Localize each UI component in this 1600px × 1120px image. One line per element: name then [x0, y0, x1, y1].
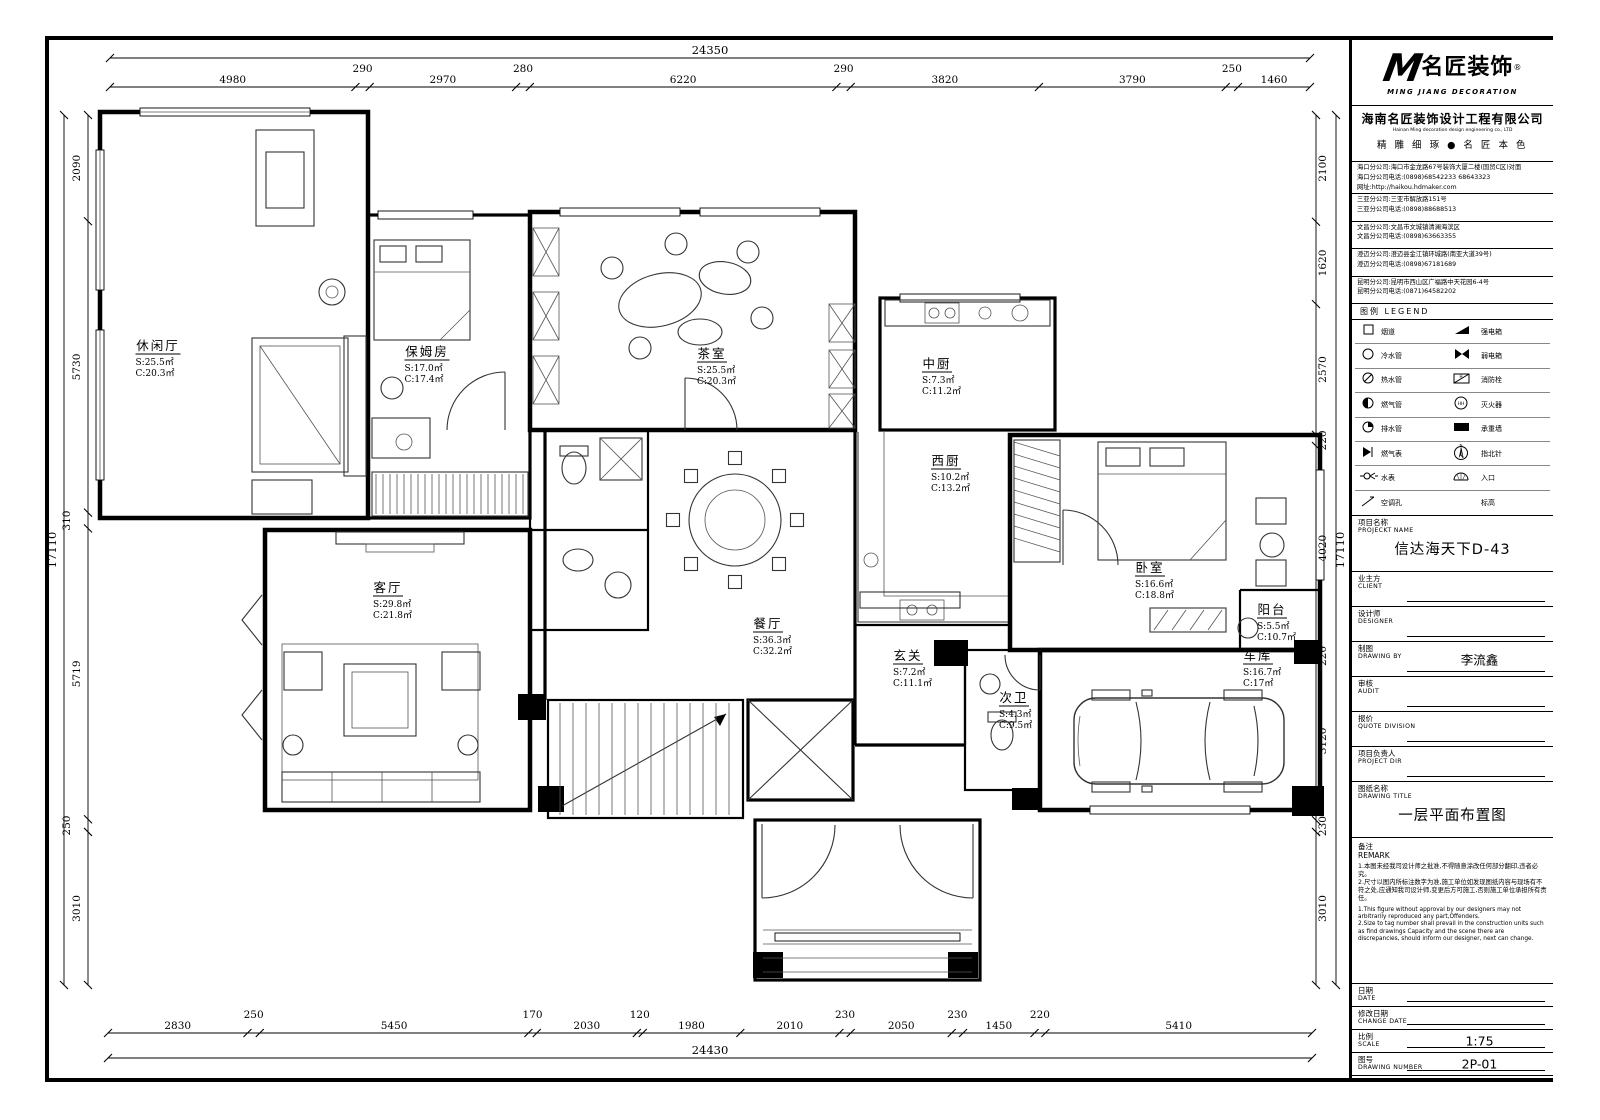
titleblock-field: 图纸名称DRAWING TITLE一层平面布置图 [1352, 782, 1553, 838]
dim-label: 2090 [71, 155, 83, 182]
field-rule [1407, 1070, 1545, 1071]
dim-label: 2010 [776, 1020, 803, 1032]
dim-label: 1980 [678, 1020, 705, 1032]
remark-line: 2.Size to tag number shall prevail in th… [1358, 921, 1547, 943]
legend-label: 水表 [1381, 473, 1441, 483]
dim-label: 4020 [1317, 535, 1329, 562]
titleblock-field: 设计师DESIGNER [1352, 607, 1553, 642]
field-label-cn: 设计师 [1358, 609, 1547, 618]
dim-label: 6220 [670, 74, 697, 86]
room-label: 茶室S:25.5㎡C:20.3㎡ [697, 346, 736, 387]
room-label: 卧室S:16.6㎡C:18.8㎡ [1135, 560, 1174, 601]
room-label: 次卫S:4.3㎡C:9.5㎡ [999, 690, 1032, 731]
room-name: 餐厅 [753, 616, 782, 631]
room-label: 车库S:16.7㎡C:17㎡ [1243, 648, 1281, 689]
dim-label: 17110 [1333, 532, 1347, 569]
room-area: S:7.3㎡ [922, 375, 955, 386]
field-rule [1407, 601, 1545, 602]
legend-row: 空调孔标高 [1355, 491, 1550, 515]
planter-hatch [1154, 610, 1168, 630]
room-area: S:17.0㎡ [405, 363, 443, 374]
field-rule [1407, 706, 1545, 707]
dim-label: 5410 [1165, 1020, 1192, 1032]
titleblock-field: 制图DRAWING BY李流鑫 [1352, 642, 1553, 677]
dim-label: 220 [1317, 646, 1329, 666]
closet-hatch [1014, 490, 1060, 504]
room-area: S:36.3㎡ [753, 635, 791, 646]
room-perimeter: C:17㎡ [1243, 678, 1273, 689]
room-area: S:25.5㎡ [136, 357, 174, 368]
room-perimeter: C:20.3㎡ [697, 376, 736, 387]
legend-row: 水表入口 [1355, 466, 1550, 490]
room-name: 西厨 [931, 453, 960, 468]
legend-table: 烟道强电箱冷水管弱电箱热水管H消防栓燃气管HH灭火器排水管承重墙燃气表N指北针水… [1352, 320, 1553, 516]
legend-label: 燃气表 [1381, 449, 1441, 459]
legend-header: 图例 LEGEND [1352, 304, 1553, 320]
field-label-cn: 项目负责人 [1358, 749, 1547, 758]
planter-hatch [1172, 610, 1186, 630]
company-name-en: Hainan Ming decoration design engineerin… [1352, 128, 1553, 133]
room-area: S:16.6㎡ [1135, 579, 1173, 590]
dim-label: 250 [244, 1009, 264, 1021]
remark-section: 备注 REMARK 1.本图未经我司设计师之批准,不得随意涂改任何部分翻印,违者… [1352, 838, 1553, 984]
room-perimeter: C:10.7㎡ [1257, 632, 1296, 643]
room-label: 客厅S:29.8㎡C:21.8㎡ [373, 580, 412, 621]
room-name: 茶室 [697, 346, 726, 361]
closet-hatch [1014, 514, 1060, 528]
legend-label: 消防栓 [1481, 375, 1549, 385]
drain-icon [1355, 419, 1381, 439]
legend-label: 指北针 [1481, 449, 1549, 459]
address-group: 文昌分公司:文昌市文城镇清澜海滨区文昌分公司电话:(0898)63663355 [1352, 222, 1553, 249]
titleblock-field: 修改日期CHANGE DATE [1352, 1007, 1553, 1030]
field-label-en: PROJECT DIR [1358, 758, 1547, 765]
svg-text:N: N [1459, 444, 1462, 448]
dim-label: 3790 [1119, 74, 1146, 86]
closet-hatch [1014, 466, 1060, 480]
gmeter-icon [1355, 444, 1381, 464]
room-area: S:5.5㎡ [1257, 621, 1290, 632]
room-perimeter: C:17.4㎡ [405, 374, 444, 385]
title-block: M 名匠装饰 ® MING JIANG DECORATION 海南名匠装饰设计工… [1349, 40, 1553, 1078]
titleblock-field: 比例SCALE1:75 [1352, 1030, 1553, 1053]
closet-hatch [1014, 454, 1060, 468]
company-logo: M 名匠装饰 ® MING JIANG DECORATION [1352, 40, 1553, 106]
address-line: 昆明分公司:昆明市西山区广福路中天花园6-4号 [1357, 278, 1548, 288]
room-label: 休闲厅S:25.5㎡C:20.3㎡ [136, 338, 181, 379]
room-label: 西厨S:10.2㎡C:13.2㎡ [931, 453, 970, 494]
dim-label: 4980 [219, 74, 246, 86]
power-icon [1441, 322, 1481, 342]
remark-cn-lines: 1.本图未经我司设计师之批准,不得随意涂改任何部分翻印,违者必究。2.尺寸以图内… [1358, 863, 1547, 904]
wmeter-icon [1355, 468, 1381, 488]
room-name: 客厅 [373, 580, 402, 595]
legend-title-cn: 图例 [1360, 307, 1380, 316]
room-label: 中厨S:7.3㎡C:11.2㎡ [922, 356, 961, 397]
logo-name: 名匠装饰 [1421, 57, 1513, 79]
dim-label: 3120 [1317, 728, 1329, 755]
company-slogan: 精 雕 细 琢 ● 名 匠 本 色 [1352, 137, 1553, 151]
titleblock-field: 图号DRAWING NUMBER2P-01 [1352, 1053, 1553, 1076]
dim-label: 290 [353, 63, 373, 75]
planter-hatch [1190, 610, 1204, 630]
closet-outline [1014, 440, 1060, 562]
room-perimeter: C:13.2㎡ [931, 483, 970, 494]
company-info: 海南名匠装饰设计工程有限公司 Hainan Ming decoration de… [1352, 106, 1553, 162]
dim-label: 2970 [430, 74, 457, 86]
titleblock-field: 报价QUOTE DIVISION [1352, 712, 1553, 747]
address-group: 昆明分公司:昆明市西山区广福路中天花园6-4号昆明分公司电话:(0871)645… [1352, 277, 1553, 303]
company-name-cn: 海南名匠装饰设计工程有限公司 [1352, 110, 1553, 127]
legend-label: 承重墙 [1481, 424, 1549, 434]
field-label-en: DRAWING TITLE [1358, 793, 1547, 800]
dim-label: 220 [1030, 1009, 1050, 1021]
wardrobe-outline [372, 472, 528, 516]
field-label-en: CLIENT [1358, 583, 1547, 590]
svg-text:HH: HH [1457, 401, 1464, 407]
remark-line: 2.尺寸以图内所标注数字为准,施工单位如发现图纸内容与现场有不符之处,应通知我司… [1358, 879, 1547, 904]
room-label: 阳台S:5.5㎡C:10.7㎡ [1257, 602, 1296, 643]
dim-label: 2050 [888, 1020, 915, 1032]
field-rule [1407, 1024, 1545, 1025]
planter-hatch [1208, 610, 1222, 630]
branch-addresses: 海口分公司:海口市金龙路67号装饰大厦二楼(国贸C区)对面海口分公司电话:(08… [1352, 162, 1553, 304]
dim-label: 290 [834, 63, 854, 75]
address-group: 海口分公司:海口市金龙路67号装饰大厦二楼(国贸C区)对面海口分公司电话:(08… [1352, 162, 1553, 194]
dim-label: 24350 [692, 43, 729, 57]
address-line: 三亚分公司电话:(0898)88688513 [1357, 205, 1548, 215]
dim-label: 250 [61, 816, 73, 836]
room-area: S:7.2㎡ [893, 667, 926, 678]
legend-label: 燃气管 [1381, 400, 1441, 410]
room-area: S:16.7㎡ [1243, 667, 1281, 678]
dimensions-layer: 2435049802902970280622029038203790250146… [45, 43, 1347, 1062]
room-perimeter: C:9.5㎡ [999, 720, 1032, 731]
dim-label: 3010 [71, 895, 83, 922]
legend-row: 排水管承重墙 [1355, 418, 1550, 442]
dim-label: 1450 [985, 1020, 1012, 1032]
room-perimeter: C:18.8㎡ [1135, 590, 1174, 601]
gas-icon [1355, 395, 1381, 415]
address-line: 海口分公司:海口市金龙路67号装饰大厦二楼(国贸C区)对面 [1357, 163, 1548, 173]
legend-label: 烟道 [1381, 327, 1441, 337]
dim-label: 2100 [1317, 155, 1329, 182]
address-line: 三亚分公司:三亚市解放路151号 [1357, 195, 1548, 205]
closet-hatch [1014, 442, 1060, 456]
dim-label: 5730 [71, 354, 83, 381]
field-rule [1407, 1047, 1545, 1048]
dim-label: 230 [835, 1009, 855, 1021]
hot-icon [1355, 370, 1381, 390]
field-label-cn: 图纸名称 [1358, 784, 1547, 793]
bearing-icon [1441, 419, 1481, 439]
legend-label: 灭火器 [1481, 400, 1549, 410]
field-label-cn: 项目名称 [1358, 518, 1547, 527]
dim-label: 250 [1222, 63, 1242, 75]
field-label-cn: 日期 [1358, 986, 1547, 995]
remark-line: 1.本图未经我司设计师之批准,不得随意涂改任何部分翻印,违者必究。 [1358, 863, 1547, 879]
titleblock-field: 业主方CLIENT [1352, 572, 1553, 607]
achole-icon [1355, 493, 1381, 513]
dim-label: 230 [947, 1009, 967, 1021]
room-name: 卧室 [1135, 560, 1164, 575]
flue-icon [1355, 322, 1381, 342]
walls-layer [96, 108, 1324, 980]
room-name: 保姆房 [405, 344, 449, 359]
room-perimeter: C:11.2㎡ [922, 386, 961, 397]
remark-line: 1.This figure without approval by our de… [1358, 907, 1547, 922]
room-name: 次卫 [999, 690, 1028, 705]
closet-hatch [1014, 526, 1060, 540]
legend-label: 热水管 [1381, 375, 1441, 385]
north-icon: N [1441, 444, 1481, 464]
field-label-en: QUOTE DIVISION [1358, 723, 1547, 730]
room-label: 保姆房S:17.0㎡C:17.4㎡ [405, 344, 450, 385]
dim-label: 3010 [1317, 895, 1329, 922]
field-rule [1407, 1001, 1545, 1002]
address-group: 三亚分公司:三亚市解放路151号三亚分公司电话:(0898)88688513 [1352, 194, 1553, 221]
closet-hatch [1014, 502, 1060, 516]
dim-label: 280 [513, 63, 533, 75]
dim-label: 5719 [71, 660, 83, 687]
field-value: 一层平面布置图 [1358, 804, 1547, 825]
field-label-cn: 报价 [1358, 714, 1547, 723]
address-line: 澄迈分公司电话:(0898)67181689 [1357, 260, 1548, 270]
field-value: 信达海天下D-43 [1358, 538, 1547, 559]
furniture-layer [242, 130, 1286, 806]
legend-row: 热水管H消防栓 [1355, 369, 1550, 393]
address-line: 文昌分公司电话:(0898)63663355 [1357, 232, 1548, 242]
dim-label: 120 [630, 1009, 650, 1021]
room-area: S:10.2㎡ [931, 472, 969, 483]
none-icon [1441, 493, 1481, 513]
weak-icon [1441, 346, 1481, 366]
room-name: 中厨 [922, 356, 951, 371]
remark-title-en: REMARK [1358, 851, 1547, 860]
titleblock-field: 项目负责人PROJECT DIR [1352, 747, 1553, 782]
field-rule [1407, 776, 1545, 777]
legend-title-en: LEGEND [1385, 307, 1430, 316]
field-label-en: PROJECKT NAME [1358, 527, 1547, 534]
dim-label: 5450 [381, 1020, 408, 1032]
field-label-cn: 业主方 [1358, 574, 1547, 583]
room-perimeter: C:32.2㎡ [753, 646, 792, 657]
dim-label: 24430 [692, 1043, 729, 1057]
ext-icon: HH [1441, 395, 1481, 415]
field-rule [1407, 741, 1545, 742]
svg-text:H: H [1459, 374, 1462, 379]
legend-label: 标高 [1481, 498, 1549, 508]
field-label-en: DESIGNER [1358, 618, 1547, 625]
dim-label: 17110 [45, 532, 59, 569]
legend-label: 入口 [1481, 473, 1549, 483]
address-group: 澄迈分公司:澄迈县金江镇环城路(南亚大道39号)澄迈分公司电话:(0898)67… [1352, 249, 1553, 276]
dim-label: 3820 [931, 74, 958, 86]
room-area: S:4.3㎡ [999, 709, 1032, 720]
room-area: S:29.8㎡ [373, 599, 411, 610]
legend-label: 排水管 [1381, 424, 1441, 434]
cold-icon [1355, 346, 1381, 366]
dim-label: 170 [523, 1009, 543, 1021]
room-perimeter: C:11.1㎡ [893, 678, 932, 689]
legend-label: 冷水管 [1381, 351, 1441, 361]
legend-row: 烟道强电箱 [1355, 320, 1550, 344]
titleblock-field: 项目名称PROJECKT NAME信达海天下D-43 [1352, 516, 1553, 572]
field-value: 李流鑫 [1410, 650, 1549, 669]
room-perimeter: C:20.3㎡ [136, 368, 175, 379]
hydrant-icon: H [1441, 370, 1481, 390]
dim-label: 230 [1317, 816, 1329, 836]
field-rule [1407, 671, 1545, 672]
address-line: 文昌分公司:文昌市文城镇清澜海滨区 [1357, 223, 1548, 233]
legend-label: 强电箱 [1481, 327, 1549, 337]
dim-label: 1460 [1261, 74, 1288, 86]
titleblock-field: 审核AUDIT [1352, 677, 1553, 712]
field-rule [1407, 636, 1545, 637]
field-label-cn: 修改日期 [1358, 1009, 1547, 1018]
dim-label: 310 [61, 511, 73, 531]
logo-registered-mark: ® [1513, 64, 1521, 72]
room-name: 阳台 [1257, 602, 1286, 617]
legend-row: 燃气表N指北针 [1355, 442, 1550, 466]
address-line: 澄迈分公司:澄迈县金江镇环城路(南亚大道39号) [1357, 250, 1548, 260]
address-line: 网址:http://haikou.hdmaker.com [1357, 183, 1548, 193]
legend-label: 弱电箱 [1481, 351, 1549, 361]
dim-label: 2030 [573, 1020, 600, 1032]
address-line: 昆明分公司电话:(0871)64582202 [1357, 287, 1548, 297]
legend-label: 空调孔 [1381, 498, 1441, 508]
closet-hatch [1014, 538, 1060, 552]
legend-row: 冷水管弱电箱 [1355, 344, 1550, 368]
field-label-en: AUDIT [1358, 688, 1547, 695]
room-perimeter: C:21.8㎡ [373, 610, 412, 621]
room-name: 休闲厅 [136, 338, 180, 353]
room-area: S:25.5㎡ [697, 365, 735, 376]
dim-label: 2830 [164, 1020, 191, 1032]
remark-en-lines: 1.This figure without approval by our de… [1358, 907, 1547, 944]
entry-icon [1441, 468, 1481, 488]
dim-label: 2570 [1317, 356, 1329, 383]
closet-hatch [1014, 478, 1060, 492]
logo-m-icon: M [1380, 49, 1425, 87]
remark-title-cn: 备注 [1358, 842, 1547, 851]
room-name: 玄关 [893, 648, 922, 663]
legend-row: 燃气管HH灭火器 [1355, 393, 1550, 417]
room-name: 车库 [1243, 648, 1272, 663]
room-label: 玄关S:7.2㎡C:11.1㎡ [893, 648, 932, 689]
room-labels-layer: 休闲厅S:25.5㎡C:20.3㎡保姆房S:17.0㎡C:17.4㎡茶室S:25… [136, 338, 1296, 731]
room-label: 餐厅S:36.3㎡C:32.2㎡ [753, 616, 792, 657]
field-label-cn: 审核 [1358, 679, 1547, 688]
address-line: 海口分公司电话:(0898)68542233 68643323 [1357, 173, 1548, 183]
dim-label: 220 [1317, 430, 1329, 450]
titleblock-field: 日期DATE [1352, 984, 1553, 1007]
dim-label: 1620 [1317, 250, 1329, 277]
